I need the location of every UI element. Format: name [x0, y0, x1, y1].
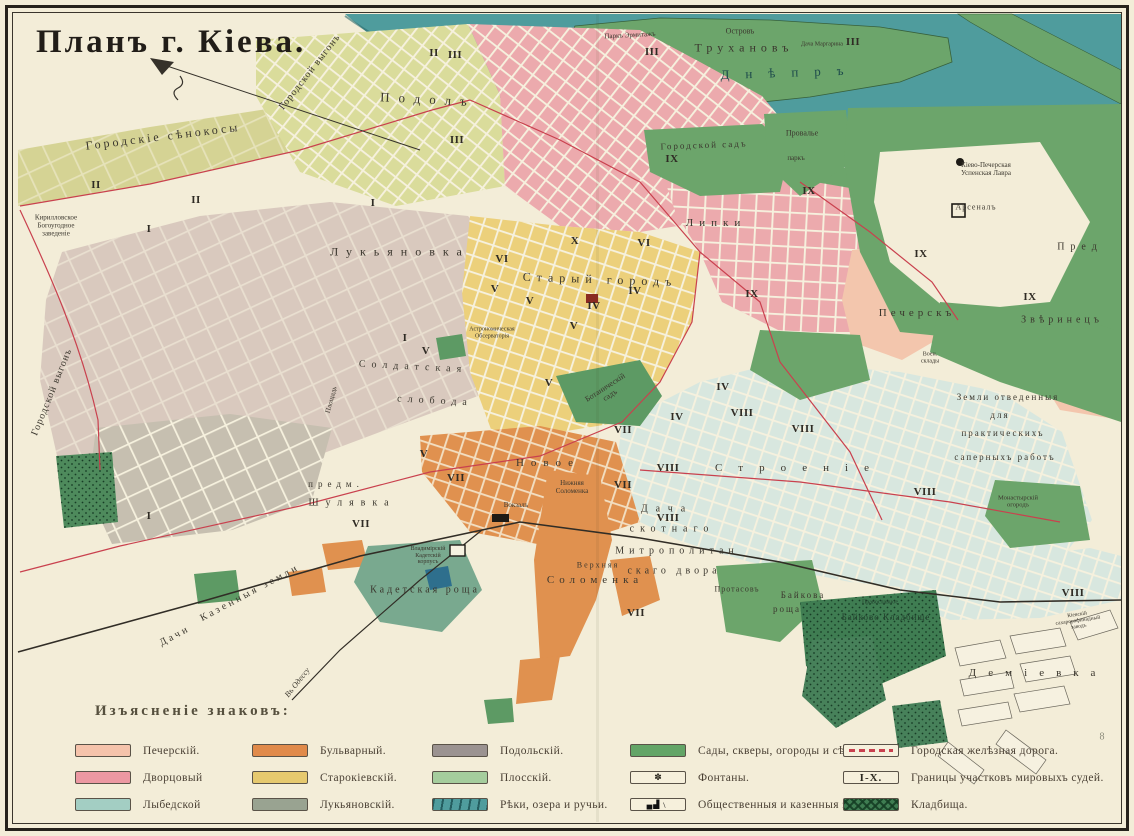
legend-swatch-fill [432, 744, 488, 757]
legend-column: Городская желѣзная дорога.I-X.Границы уч… [843, 737, 1104, 818]
legend-label: Печерскій. [143, 745, 200, 757]
legend-item: Кладбища. [843, 791, 1104, 818]
legend-swatch-fill [252, 798, 308, 811]
legend-column: Печерскій.ДворцовыйЛыбедской [75, 737, 203, 818]
legend-item: Плосскій. [432, 764, 608, 791]
legend-item: ▄▟﹨Общественныя и казенныя зданія. [630, 791, 878, 818]
legend-swatch-fill [75, 744, 131, 757]
legend-swatch-rail [843, 744, 899, 757]
legend-swatch-fill [252, 744, 308, 757]
legend-swatch-fill [75, 798, 131, 811]
legend-item: Старокіевскій. [252, 764, 397, 791]
legend-item: Сады, скверы, огороды и сѣнок. [630, 737, 878, 764]
legend-label: Сады, скверы, огороды и сѣнок. [698, 745, 867, 757]
fountain-icon: ✽ [630, 771, 686, 784]
legend-item: ✽Фонтаны. [630, 764, 878, 791]
legend-column: Сады, скверы, огороды и сѣнок.✽Фонтаны.▄… [630, 737, 878, 818]
legend-item: Лукьяновскій. [252, 791, 397, 818]
legend-item: Бульварный. [252, 737, 397, 764]
legend-label: Кладбища. [911, 799, 968, 811]
legend-column: Бульварный.Старокіевскій.Лукьяновскій. [252, 737, 397, 818]
legend-label: Городская желѣзная дорога. [911, 745, 1058, 757]
map-sheet: { "title": "Планъ г. Кіева.", "pencil_ma… [0, 0, 1134, 836]
legend-item: I-X.Границы участковъ мировыхъ судей. [843, 764, 1104, 791]
legend-label: Дворцовый [143, 772, 203, 784]
legend-heading: Изъясненіе знаковъ: [95, 703, 291, 720]
legend-label: Лыбедской [143, 799, 201, 811]
legend-item: Лыбедской [75, 791, 203, 818]
legend-swatch-fill [75, 771, 131, 784]
legend-swatch-fill [432, 771, 488, 784]
legend-item: Подольскій. [432, 737, 608, 764]
legend-label: Рѣки, озера и ручьи. [500, 799, 608, 811]
legend-label: Старокіевскій. [320, 772, 397, 784]
legend-label: Границы участковъ мировыхъ судей. [911, 772, 1104, 784]
legend-swatch-water [432, 798, 488, 811]
legend-item: Дворцовый [75, 764, 203, 791]
legend-item: Рѣки, озера и ручьи. [432, 791, 608, 818]
legend-swatch-fill [252, 771, 308, 784]
legend-item: Городская желѣзная дорога. [843, 737, 1104, 764]
legend-label: Подольскій. [500, 745, 563, 757]
legend-label: Бульварный. [320, 745, 386, 757]
legend-label: Фонтаны. [698, 772, 749, 784]
legend-column: Подольскій.Плосскій.Рѣки, озера и ручьи. [432, 737, 608, 818]
legend-item: Печерскій. [75, 737, 203, 764]
buildings-icon: ▄▟﹨ [630, 798, 686, 811]
legend-label: Плосскій. [500, 772, 552, 784]
legend: Изъясненіе знаковъ: Печерскій.ДворцовыйЛ… [0, 0, 1134, 836]
legend-label: Лукьяновскій. [320, 799, 395, 811]
legend-swatch-hatch [843, 798, 899, 811]
legend-swatch-fill [630, 744, 686, 757]
legend-swatch-ixbox: I-X. [843, 771, 899, 784]
